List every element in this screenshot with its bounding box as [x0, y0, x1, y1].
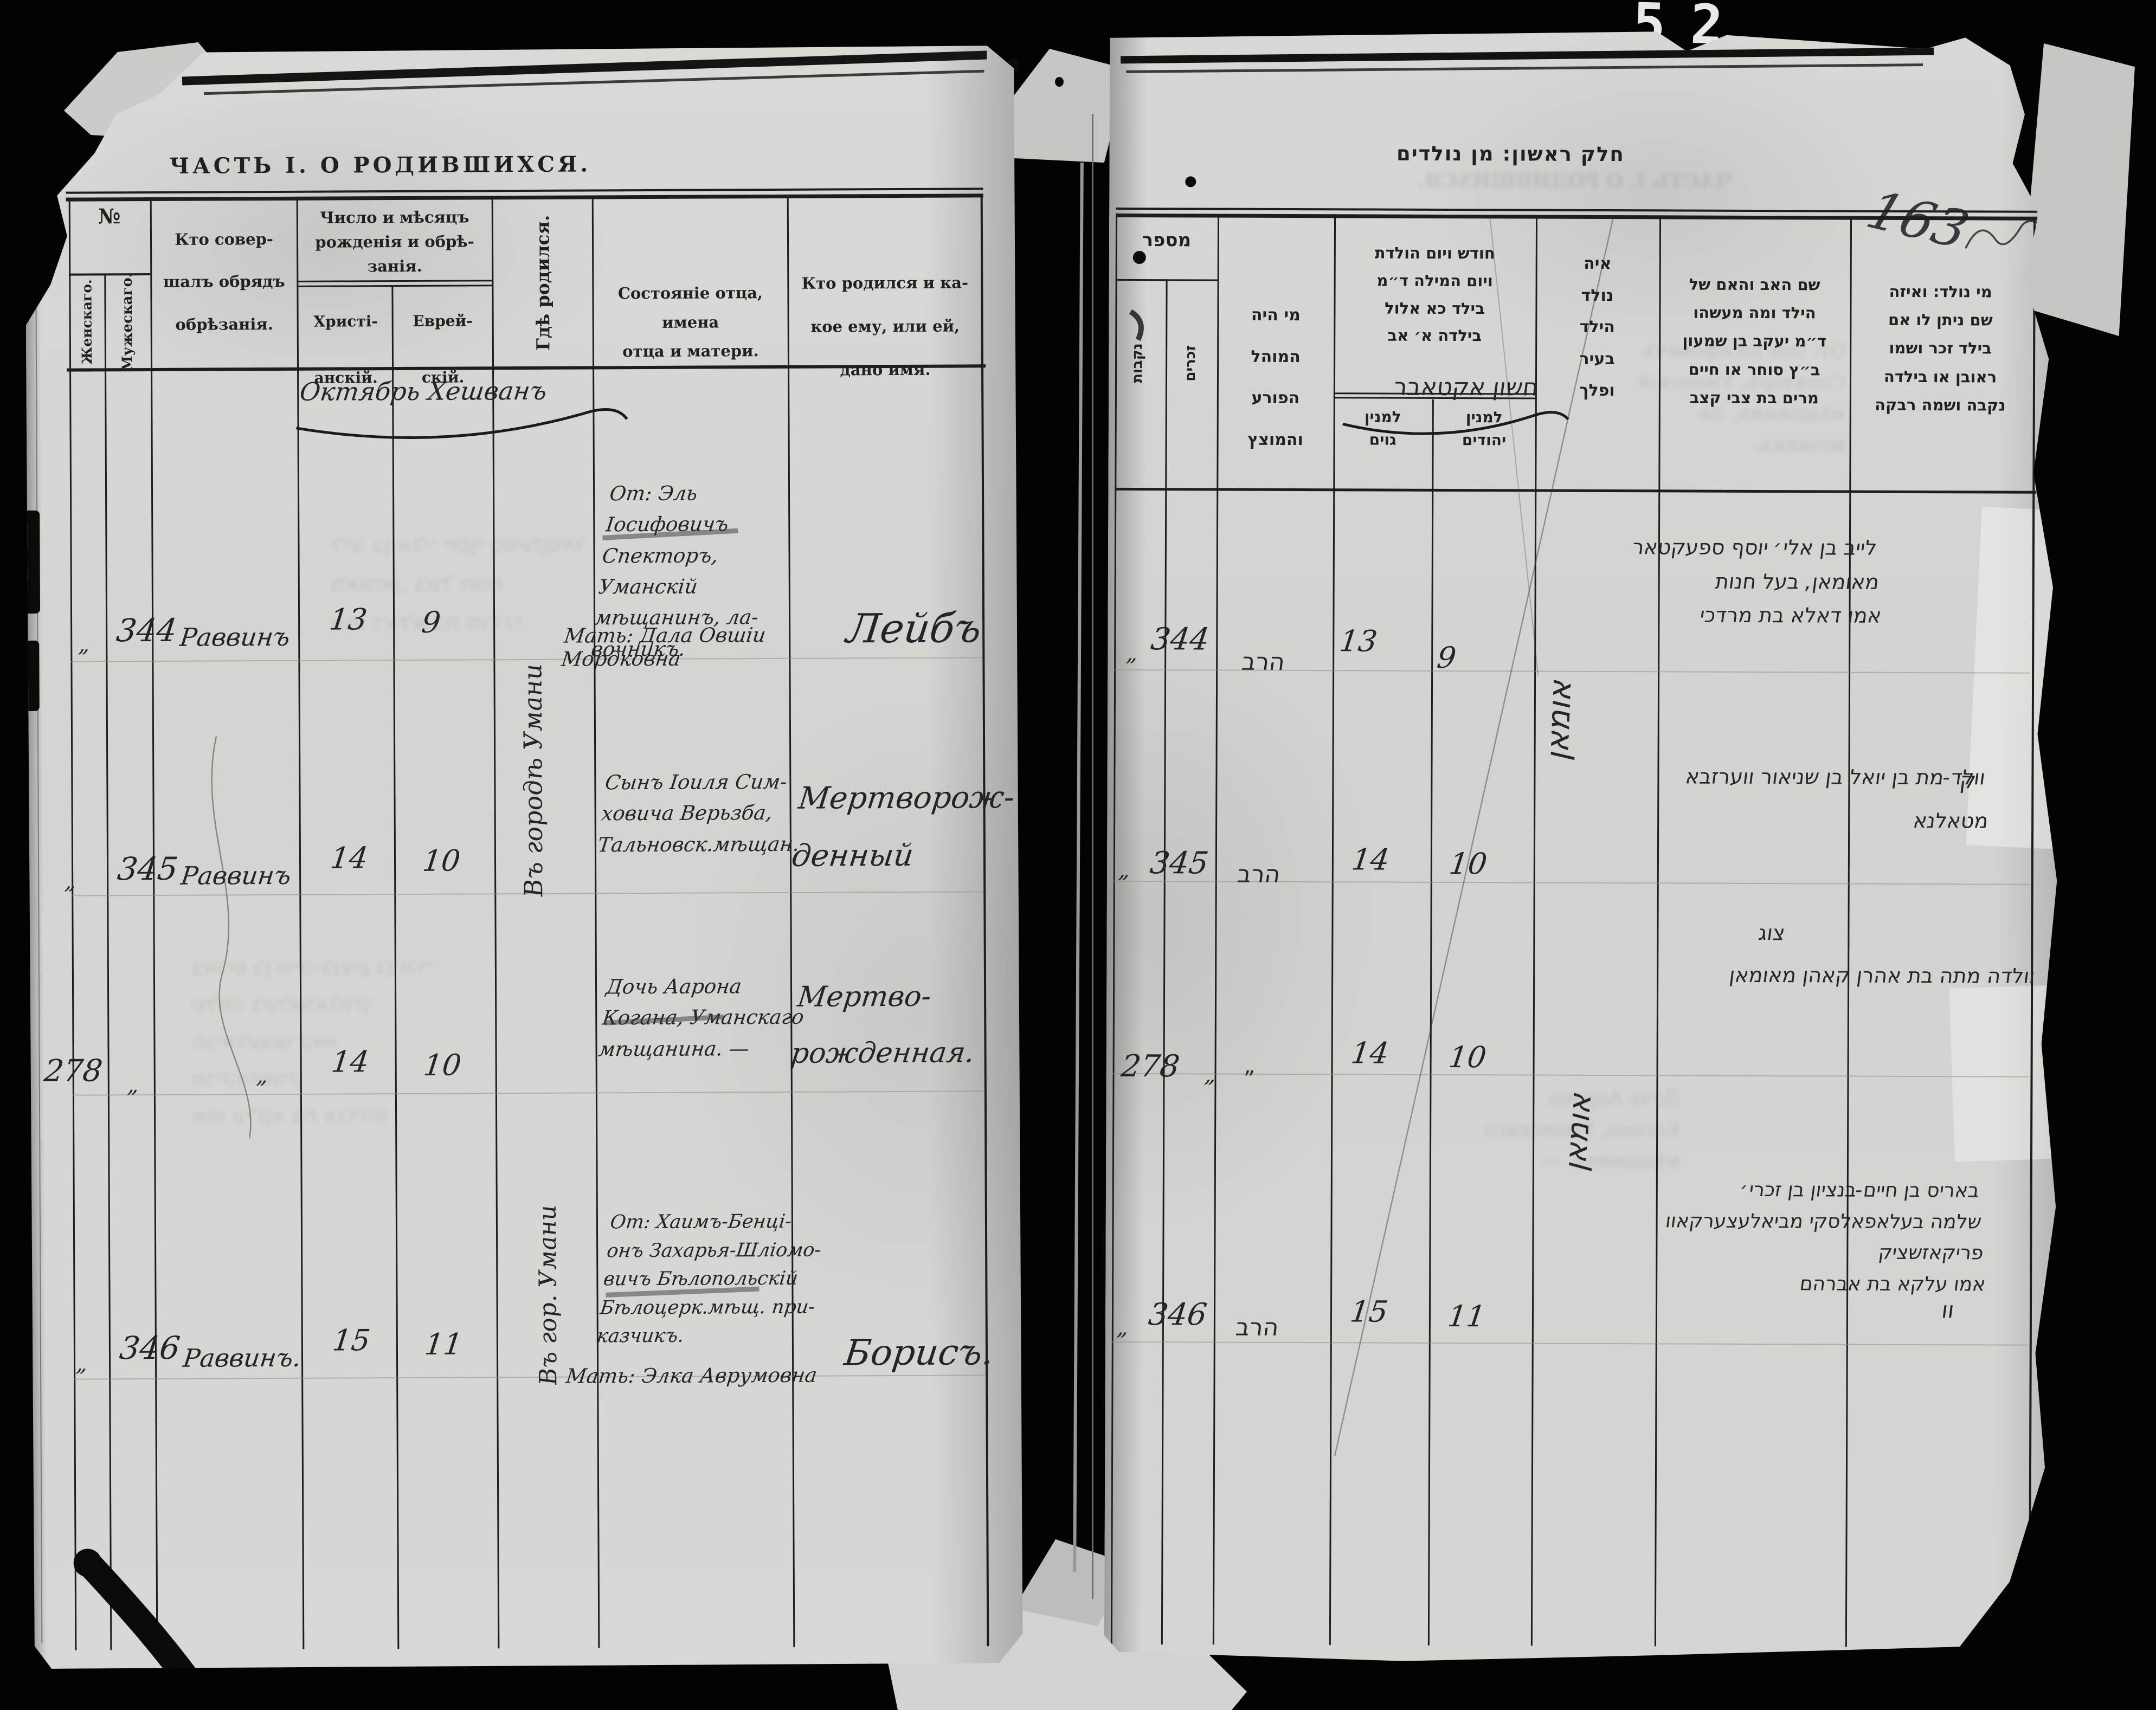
- child-name: Мертво- рожденная.: [788, 968, 1029, 1082]
- left-page-scan: ЧАСТЬ I. О РОДИВШИХСЯ. № Женскаго. Мужес…: [24, 46, 1024, 1670]
- column-rule: [2029, 217, 2036, 1648]
- father-entry: От: Хаимъ-Бенці- онъ Захарья-Шліомо- вич…: [595, 1208, 832, 1351]
- entry-text: באריס בן חיים-בנציון בן זכרי׳ שלמה בעלאפ…: [1568, 1174, 1985, 1300]
- child-name: Мертворож- денный: [788, 769, 1029, 886]
- col-date-christian: למנין גוים: [1335, 405, 1431, 451]
- page-top-band: [182, 51, 987, 86]
- left-page-title: ЧАСТЬ I. О РОДИВШИХСЯ.: [123, 151, 638, 179]
- mohel-entry: הרב: [1239, 648, 1284, 676]
- column-rule: [297, 197, 305, 1649]
- column-rule: [787, 195, 795, 1647]
- mohel-entry: „: [1244, 1054, 1257, 1079]
- col-birthplace: Гдѣ родился.: [494, 203, 591, 362]
- col-who-born: Кто родился и ка- кое ему, или ей, дано …: [790, 261, 980, 392]
- right-page-scan: חלק ראשון: מן נולדים 163 מספר נקבות זכרי…: [1104, 30, 2104, 1663]
- col-number-female: נקבות: [1129, 328, 1145, 398]
- col-officiant: Кто совер- шалъ обрядъ обрѣзанія.: [153, 218, 295, 346]
- col-number: מספר: [1116, 229, 1218, 251]
- mohel-entry: הרב: [1235, 861, 1279, 888]
- bleedthrough-text: Дочь Аарона Когана, Уманскаго мѣщанина. …: [1399, 1082, 1681, 1177]
- column-rule: [1655, 215, 1661, 1646]
- column-rule: [150, 197, 158, 1650]
- month-note: חשון אקטאבר: [1341, 373, 1537, 401]
- father-entry: Сынъ Іоиля Сим- ховича Верьзба, Тальновс…: [596, 766, 821, 861]
- bleedthrough-text: באריס בן חיים-בנציון בן זכרי׳ שלמה בעלאפ…: [191, 947, 495, 1134]
- mother-entry: Мать: Дала Овшіи Мордковна: [560, 623, 836, 670]
- col-number-female: Женскаго.: [69, 277, 105, 366]
- page-top-band: [1121, 48, 1934, 64]
- col-parents: Состояніе отца, имена отца и матери.: [595, 279, 786, 366]
- column-rule: [1111, 214, 1117, 1644]
- column-rule: [104, 274, 112, 1650]
- ditto-mark: צוג: [1756, 921, 1784, 945]
- binding-edge-line: [35, 278, 42, 1643]
- col-number-male: זכרים: [1182, 328, 1199, 398]
- month-note: Октябрь Хешванъ: [298, 376, 605, 406]
- ditto-mark: וו: [1939, 1296, 1953, 1323]
- entry-text: וולדה מתה בת אהרן קאהן מאומאן: [1578, 963, 2035, 988]
- father-entry: Дочь Аарона Когана, Уманскаго мѣщанина. …: [597, 971, 822, 1065]
- column-rule: [1845, 216, 1852, 1647]
- child-name: Лейбъ: [844, 605, 984, 652]
- spine-page-edge: [1073, 163, 1084, 1572]
- col-dates-group: חודש ויום הולדת ויום המילה ד״מ בילד כא א…: [1335, 239, 1535, 350]
- col-number: №: [69, 204, 150, 229]
- entry-text: וולד-מת בן יואל בן שניאור ווערזבא מטאלנא: [1560, 755, 1988, 843]
- spine-page-edge: [1092, 114, 1093, 1599]
- col-parents: שם האב והאם של הילד ומה מעשהו ד״מ יעקב ב…: [1660, 270, 1849, 412]
- child-name: Борисъ.: [842, 1331, 996, 1373]
- column-rule: [69, 198, 77, 1650]
- entry-text: לייב בן אלי׳ יוסף ספעקטאר מאומאן, בעל חנ…: [1587, 530, 1881, 633]
- mother-entry: Мать: Элка Аврумовна: [565, 1363, 844, 1388]
- ink-blot: [1055, 77, 1064, 87]
- col-mohel: מי היה המוהל הפורע והמוצץ: [1218, 295, 1333, 461]
- column-rule: [391, 287, 399, 1649]
- col-date-jewish: למנין יהודים: [1434, 406, 1534, 452]
- col-who-born: מי נולד: ואיזה שם ניתן לו אם בילד זכר וש…: [1851, 278, 2030, 420]
- scanned-register-spread: 52 ЧАСТЬ I. О РОДИВШИХСЯ.: [0, 0, 2156, 1710]
- col-number-male: Мужескаго.: [104, 276, 151, 368]
- column-rule: [981, 193, 989, 1646]
- entry-row: „: [78, 632, 92, 657]
- column-rule: [1428, 399, 1434, 1646]
- col-dates-group: Число и мѣсяцъ рожденія и обрѣ- занія.: [299, 205, 491, 279]
- mohel-entry: הרב: [1233, 1314, 1278, 1341]
- col-birthplace: איה נולד הילד בעיר ופלך: [1536, 248, 1658, 407]
- column-rule: [1161, 281, 1168, 1644]
- torn-paper-fragment: [2021, 43, 2135, 336]
- bleedthrough-text: ЧАСТЬ I. О РОДИВШИХСЯ.: [1342, 169, 1733, 193]
- right-page-title: חלק ראשון: מן נולדים: [1337, 141, 1684, 166]
- column-rule: [492, 196, 500, 1648]
- column-rule: [592, 195, 600, 1648]
